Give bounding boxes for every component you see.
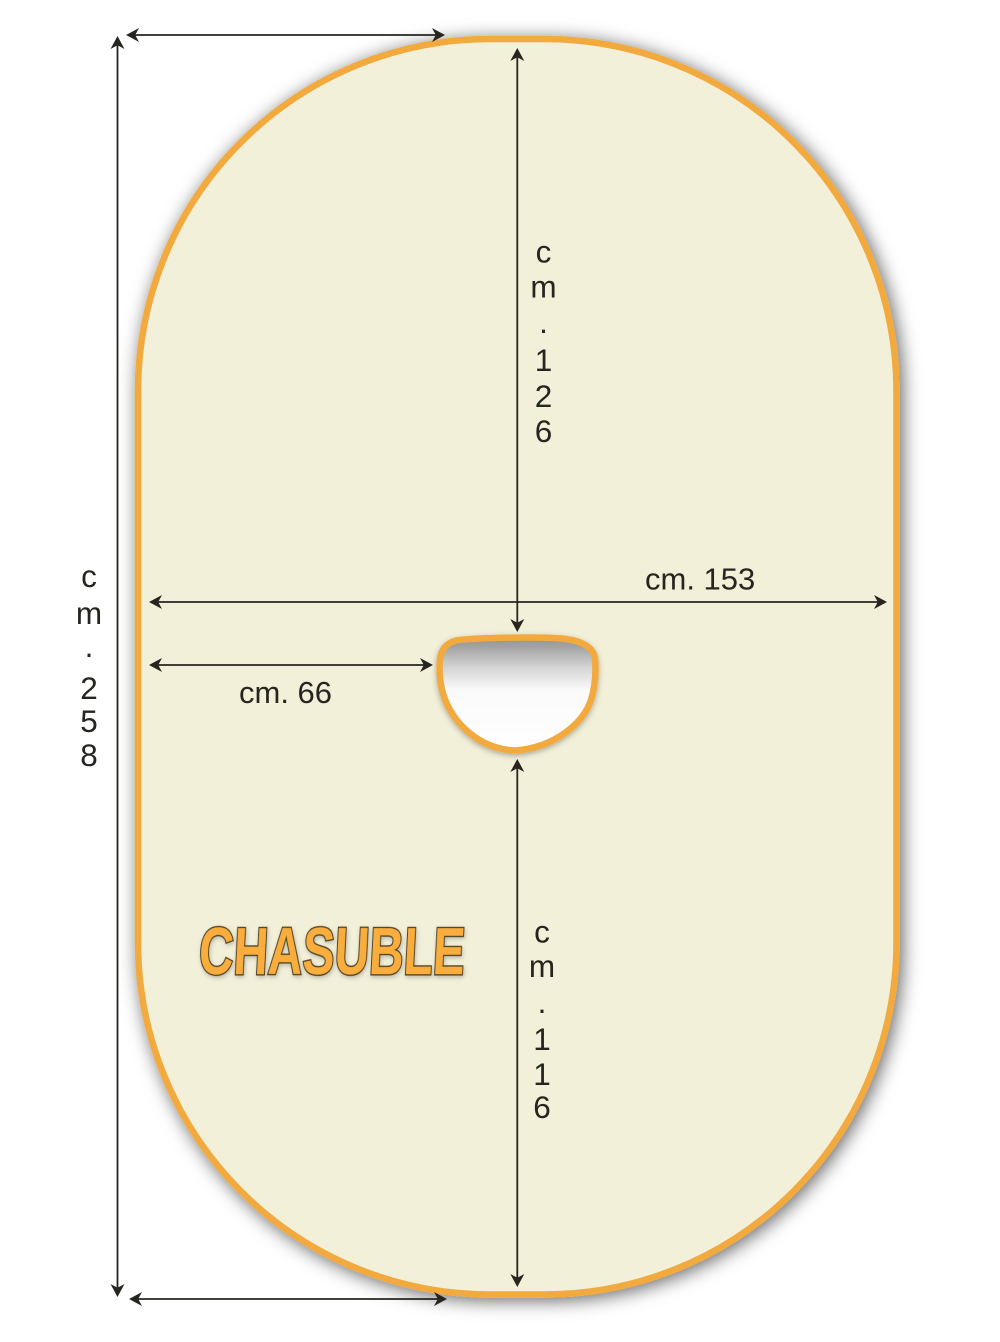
svg-text:m: m xyxy=(76,595,102,631)
svg-text:5: 5 xyxy=(80,703,98,739)
svg-text:2: 2 xyxy=(535,378,553,414)
svg-text:.: . xyxy=(538,984,547,1020)
svg-text:c: c xyxy=(534,914,550,950)
svg-text:2: 2 xyxy=(80,670,98,706)
svg-text:c: c xyxy=(81,558,97,594)
svg-text:1: 1 xyxy=(535,342,553,378)
svg-text:m: m xyxy=(530,269,556,305)
svg-text:1: 1 xyxy=(533,1056,551,1092)
svg-text:8: 8 xyxy=(80,737,98,773)
svg-text:cm. 66: cm. 66 xyxy=(239,675,332,710)
svg-text:1: 1 xyxy=(533,1021,551,1057)
svg-text:6: 6 xyxy=(533,1089,551,1125)
svg-text:.: . xyxy=(85,628,94,664)
svg-text:cm. 153: cm. 153 xyxy=(645,562,755,597)
svg-text:CHASUBLE: CHASUBLE xyxy=(197,914,467,989)
svg-text:c: c xyxy=(536,234,552,270)
svg-text:m: m xyxy=(529,948,555,984)
svg-text:6: 6 xyxy=(535,413,553,449)
svg-text:.: . xyxy=(539,304,548,340)
